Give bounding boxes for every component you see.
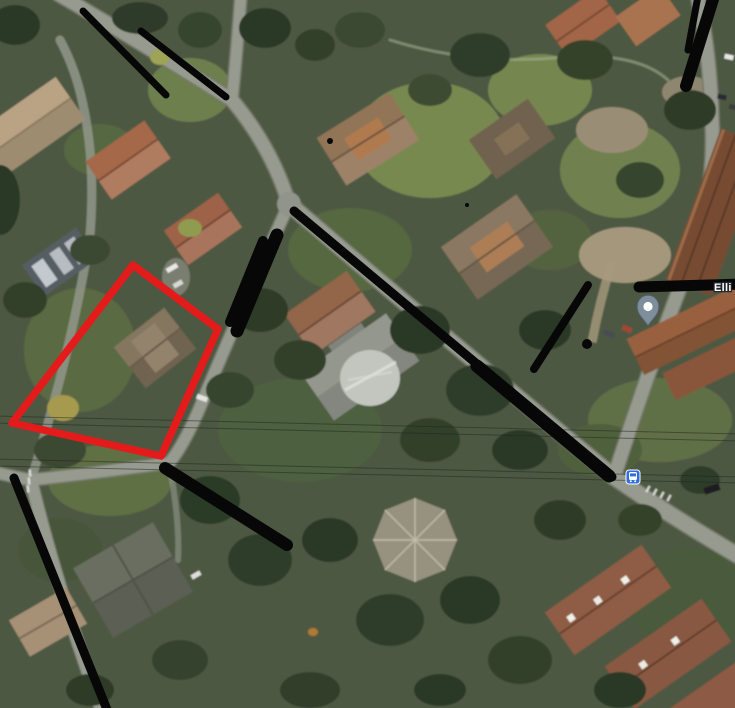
bus-stop-icon[interactable]	[626, 470, 640, 484]
poi-label: Elli	[714, 282, 732, 294]
redaction-dot	[582, 339, 592, 349]
redaction-dot	[465, 203, 469, 207]
map-viewport[interactable]: Elli	[0, 0, 735, 708]
redaction-dot	[327, 138, 333, 144]
satellite-imagery	[0, 0, 735, 708]
